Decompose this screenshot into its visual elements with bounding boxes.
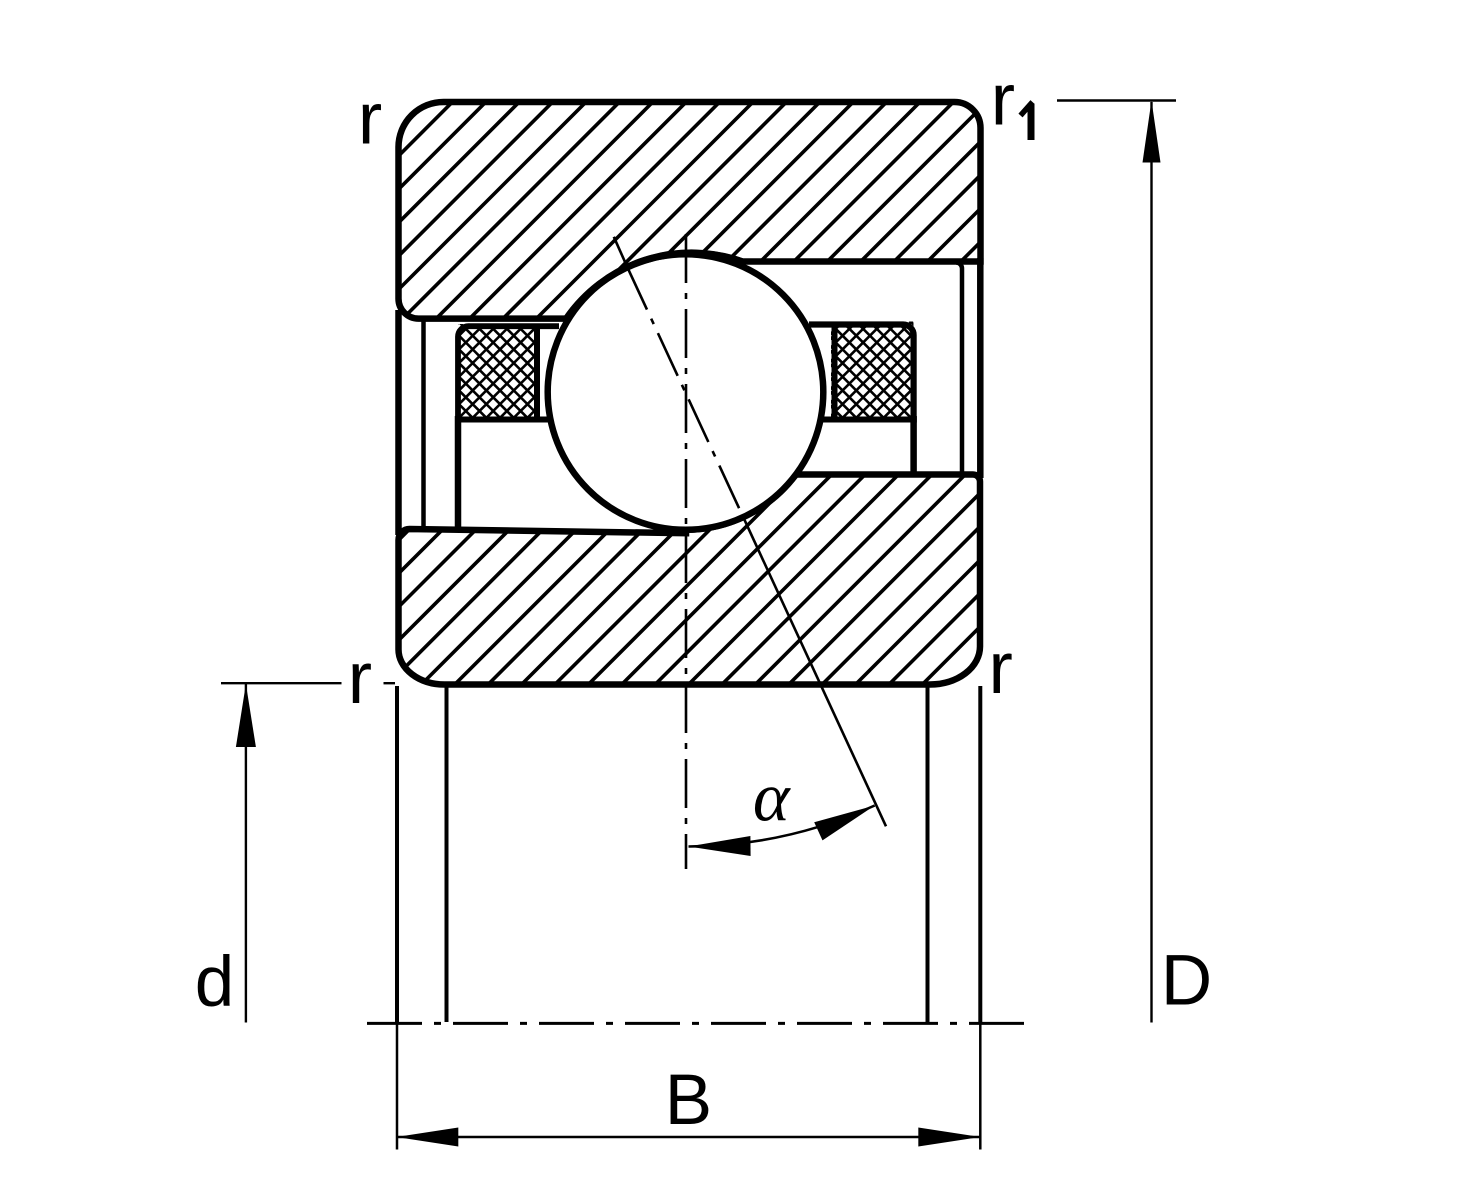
svg-text:α: α — [753, 759, 791, 836]
svg-text:D: D — [1161, 942, 1212, 1021]
svg-text:r: r — [348, 638, 372, 719]
svg-text:d: d — [195, 943, 235, 1022]
svg-text:B: B — [665, 1061, 712, 1140]
svg-text:r: r — [989, 628, 1013, 709]
svg-text:r: r — [358, 79, 382, 160]
svg-text:r: r — [991, 60, 1015, 141]
